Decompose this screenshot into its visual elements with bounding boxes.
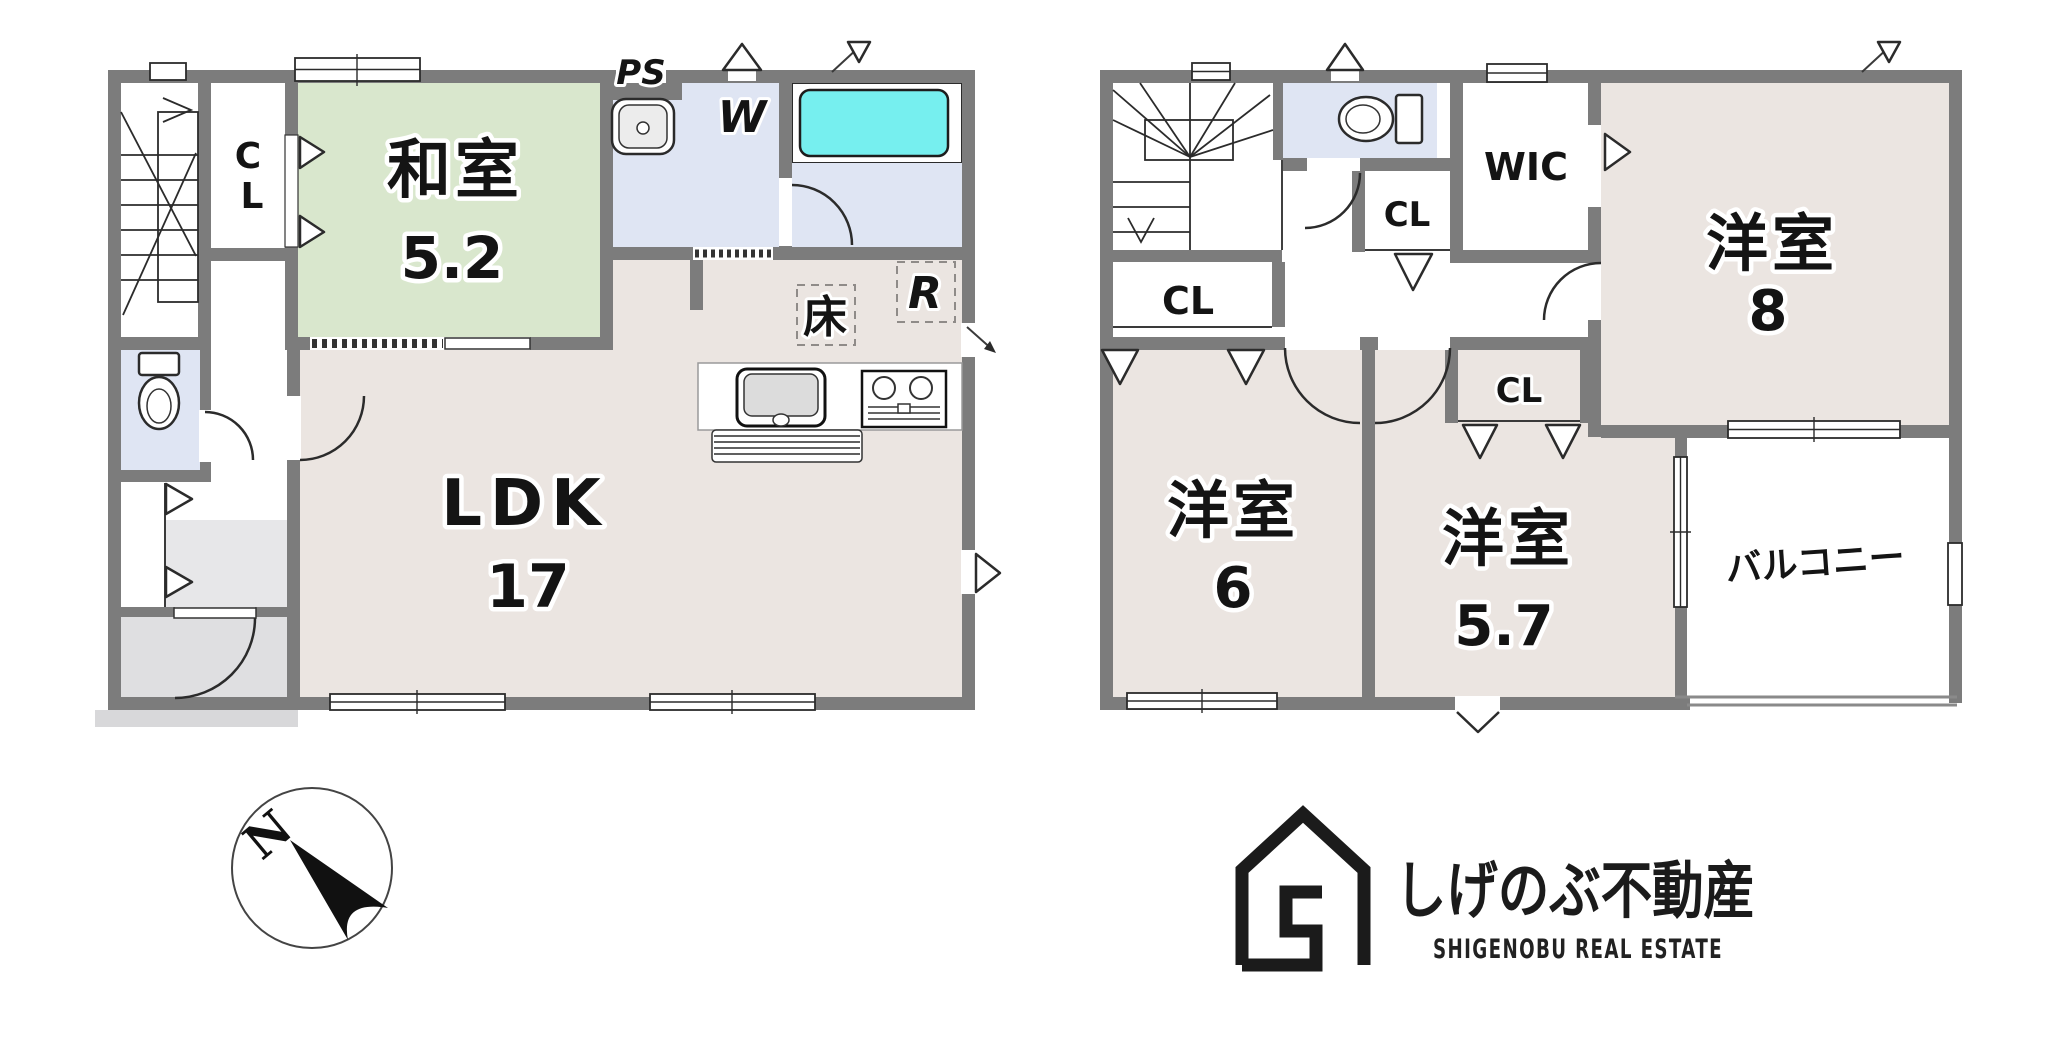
stairs-1f-icon	[121, 98, 198, 315]
bedroom6-label: 洋室	[1167, 474, 1299, 547]
bedroom8-label: 洋室	[1706, 207, 1838, 280]
compass: N	[232, 788, 392, 948]
logo-house-icon	[1242, 814, 1364, 965]
closet-label-1f: L	[241, 176, 264, 217]
closet-label-hall: CL	[1384, 195, 1431, 235]
company-name-jp: しげのぶ不動産	[1395, 854, 1755, 927]
bathtub-icon	[800, 90, 948, 156]
counter-front-icon	[712, 430, 862, 462]
stairs-2f-icon	[1113, 83, 1282, 250]
entry-hall-upper	[165, 520, 287, 607]
vent-icon	[1878, 42, 1900, 62]
floor1-plan: C L 和室 5.2 PS W 床 R LDK 17	[95, 42, 1000, 727]
floorplan-drawing: C L 和室 5.2 PS W 床 R LDK 17	[0, 0, 2048, 1039]
closet-label-room57: CL	[1496, 371, 1543, 411]
refrigerator-label: R	[908, 268, 942, 319]
bedroom57-label: 洋室	[1442, 502, 1574, 575]
toilet-icon-2f	[1339, 95, 1422, 143]
floorplan-sheet: C L 和室 5.2 PS W 床 R LDK 17	[0, 0, 2048, 1039]
vent-icon	[848, 42, 870, 62]
vent-icon	[1327, 44, 1363, 70]
bathroom-lower	[792, 163, 962, 247]
tatami-room	[298, 83, 600, 337]
balcony-label: バルコニー	[1724, 537, 1906, 590]
ps-label: PS	[616, 53, 665, 93]
tatami-room-label: 和室	[387, 134, 523, 208]
wic-label: WIC	[1484, 145, 1568, 189]
closet-label-1f: C	[235, 136, 261, 177]
company-name-en: SHIGENOBU REAL ESTATE	[1433, 934, 1723, 965]
vent-icon	[723, 44, 761, 70]
toilet-icon-1f	[139, 353, 179, 429]
bedroom8-size: 8	[1749, 279, 1788, 344]
floor2-plan: CL CL WIC CL 洋室 8 洋室 6 洋室 5.7 バルコニー	[1100, 42, 1962, 732]
stove-icon	[862, 371, 946, 427]
washer-label: W	[718, 92, 769, 143]
porch	[95, 710, 298, 727]
closet-label-stairs: CL	[1162, 279, 1214, 323]
company-logo: しげのぶ不動産 SHIGENOBU REAL ESTATE	[1242, 814, 1755, 965]
ldk-label: LDK	[441, 467, 609, 541]
bedroom57-size: 5.7	[1454, 594, 1553, 659]
genkan	[121, 607, 287, 697]
ldk-size: 17	[486, 552, 570, 622]
bedroom6-size: 6	[1214, 556, 1253, 621]
tatami-room-size: 5.2	[401, 224, 504, 292]
washbasin-icon	[612, 99, 674, 154]
underfloor-storage-label: 床	[803, 292, 847, 343]
